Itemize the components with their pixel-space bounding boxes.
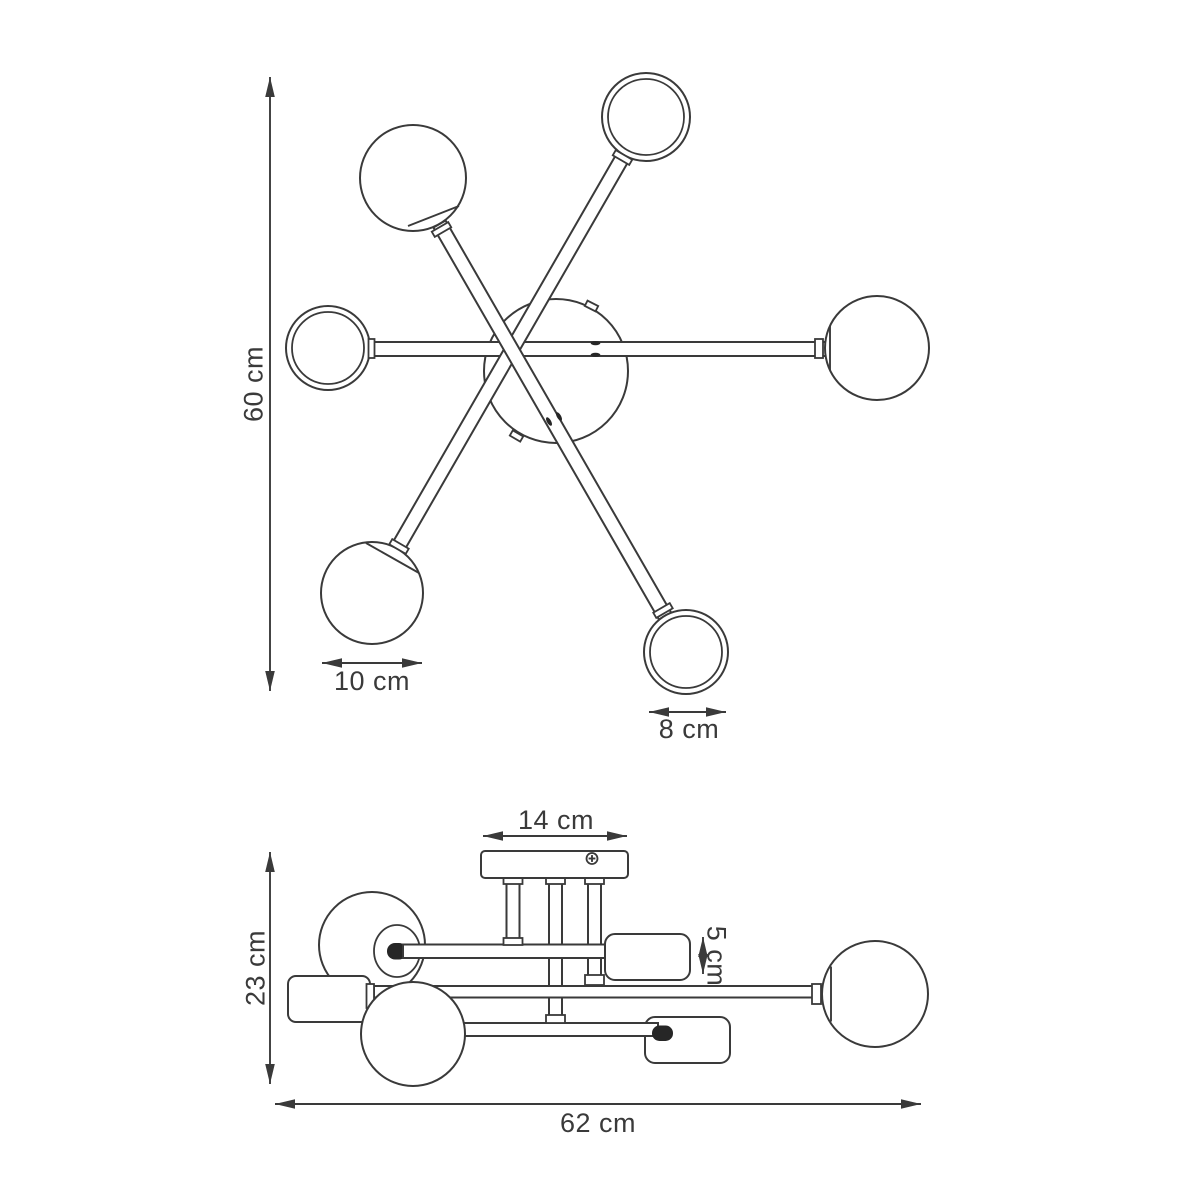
globe-bottom-left [321,542,423,644]
dimension-label-8cm: 8 cm [659,714,720,744]
technical-drawing-canvas: 60 cm 10 cm 8 cm [0,0,1200,1200]
dimension-canopy-width: 14 cm [483,805,627,836]
rod-collar [812,984,821,1004]
top-view: 60 cm 10 cm 8 cm [238,73,929,744]
rod-collar [815,339,823,358]
globe-top-right-inner-ring [608,79,684,155]
dimension-socket-height: 5 cm [702,926,732,987]
rod-bottom-flange [585,975,604,985]
dimension-label-14cm: 14 cm [518,805,594,835]
dimension-fixture-height: 23 cm [240,852,270,1084]
arm-end-cap-dark [652,1026,673,1042]
ceiling-plate [481,851,628,878]
rod-screw-detail [591,353,601,357]
rod-bottom-flange [546,1015,565,1023]
dimension-label-62cm: 62 cm [560,1108,636,1138]
side-globe-lower-left [361,982,465,1086]
side-globe-right [822,941,928,1047]
dimension-large-globe: 10 cm [322,663,422,696]
dimension-overall-height: 60 cm [238,77,270,691]
diagram-container: 60 cm 10 cm 8 cm [0,0,1200,1200]
socket-cylinder-left [288,976,370,1022]
rod-bottom-flange [504,938,523,945]
dimension-label-10cm: 10 cm [334,666,410,696]
dimension-label-60cm: 60 cm [238,346,268,422]
dimension-label-23cm: 23 cm [240,930,270,1006]
arm-rod-horizontal [374,342,830,356]
globe-top-left [360,125,466,231]
globe-right [825,296,929,400]
drop-rod-right [588,878,601,977]
side-view: 14 cm 5 cm 23 cm 62 cm [240,805,928,1138]
side-arm-lower [452,1023,658,1036]
dimension-label-5cm: 5 cm [702,926,732,987]
rod-collar [369,339,375,358]
globe-left-inner-ring [292,312,364,384]
drop-rod-left [507,878,520,940]
dimension-overall-width: 62 cm [275,1104,921,1138]
dimension-small-globe: 8 cm [649,712,726,744]
rod-screw-detail [591,341,601,345]
socket-cylinder-upper-right [605,934,690,980]
globe-bottom-right-inner-ring [650,616,722,688]
side-arm-upper [403,945,610,959]
